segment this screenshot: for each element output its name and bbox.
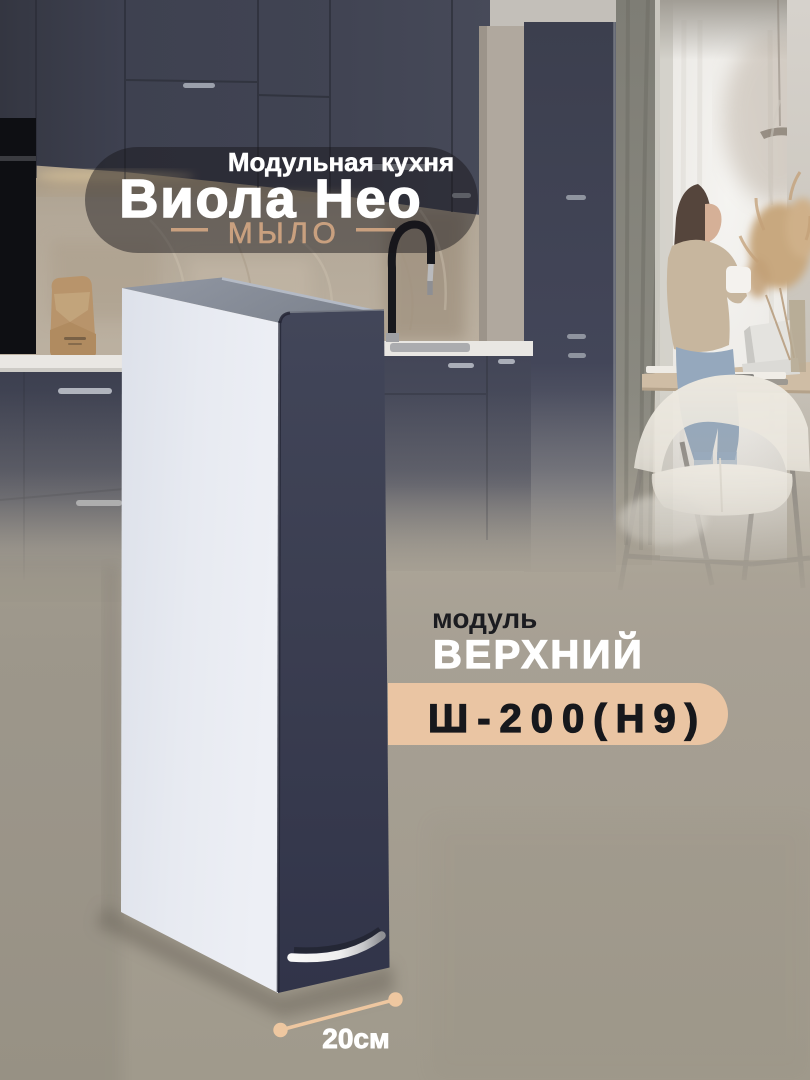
svg-text:ВЕРХНИЙ: ВЕРХНИЙ <box>433 631 644 677</box>
svg-text:модуль: модуль <box>432 603 537 634</box>
svg-text:МЫЛО: МЫЛО <box>228 217 341 250</box>
svg-text:Ш-200(Н9): Ш-200(Н9) <box>428 697 707 741</box>
svg-text:20см: 20см <box>322 1023 389 1054</box>
